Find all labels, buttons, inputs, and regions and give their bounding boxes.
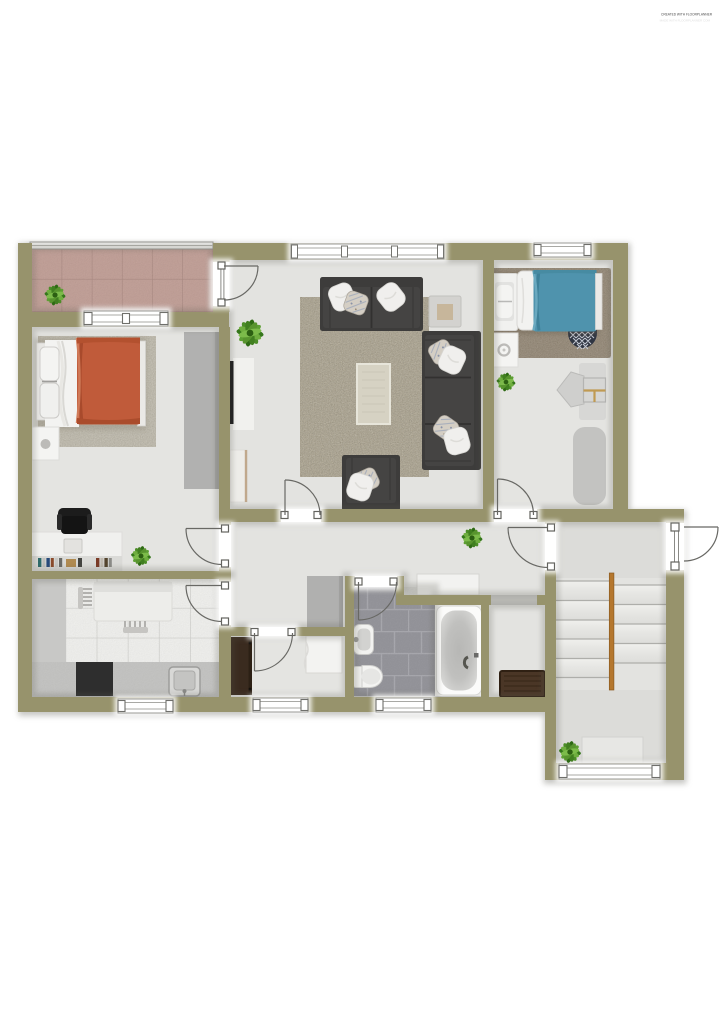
svg-text:MADE WITH FLOORPLANNER COM: MADE WITH FLOORPLANNER COM bbox=[660, 19, 711, 23]
svg-text:CREATED WITH FLOORPLANNER: CREATED WITH FLOORPLANNER bbox=[661, 13, 713, 17]
